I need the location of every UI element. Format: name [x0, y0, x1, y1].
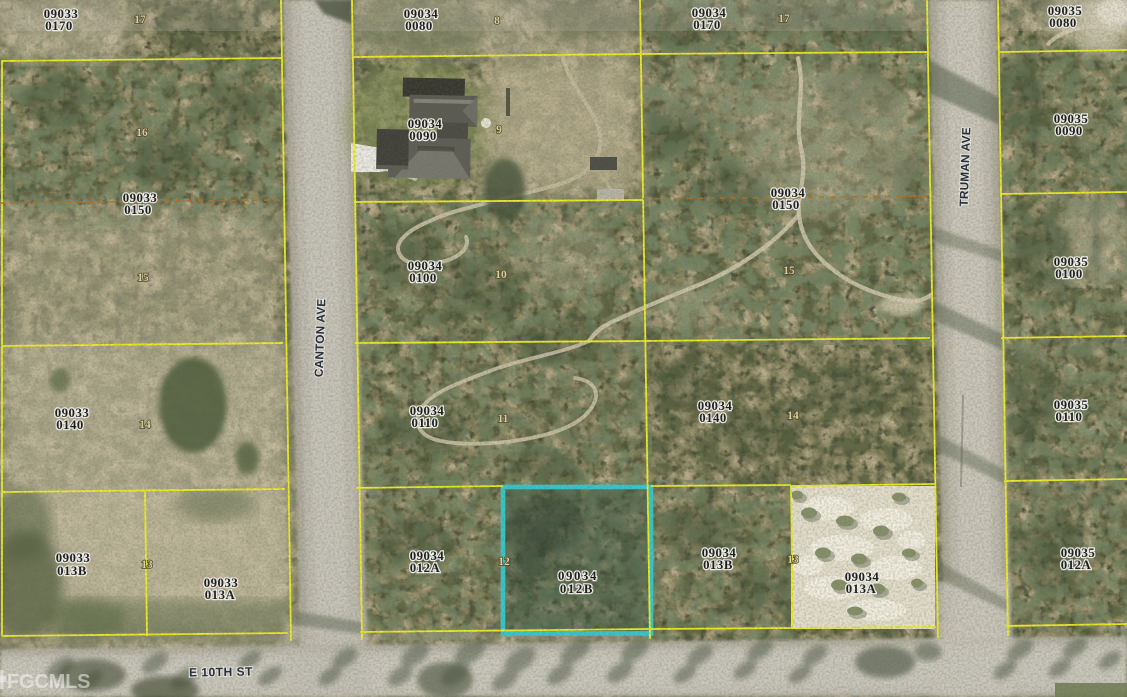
svg-text:FGCMLS: FGCMLS [7, 671, 90, 693]
